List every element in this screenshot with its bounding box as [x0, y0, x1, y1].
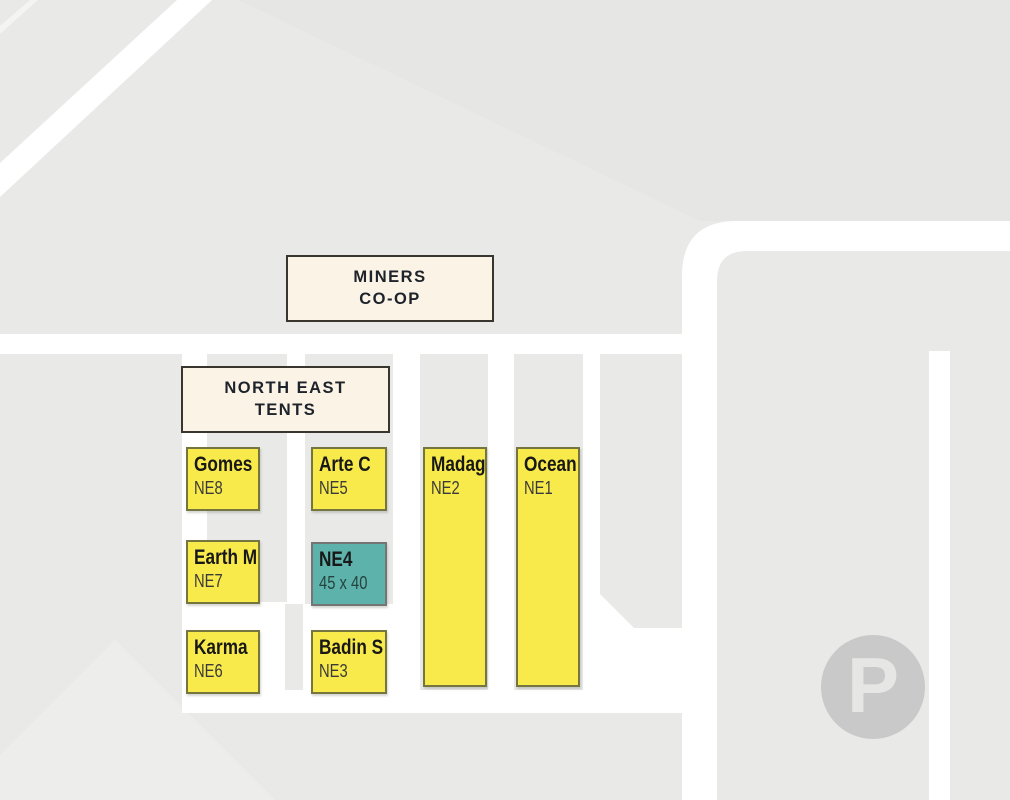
tent-code: NE3 — [319, 660, 385, 682]
area-label-line: NORTH EAST — [183, 378, 388, 400]
area-label-line: TENTS — [183, 400, 388, 422]
tent-name: Earth M — [194, 545, 258, 570]
tent-ne2[interactable]: Madag NE2 — [423, 447, 487, 687]
tent-name: Karma — [194, 635, 258, 660]
parking-letter: P — [847, 646, 899, 724]
tent-name: Gomes — [194, 452, 258, 477]
tent-name: Madag — [431, 452, 485, 477]
tent-ne5[interactable]: Arte C NE5 — [311, 447, 387, 511]
tent-ne3[interactable]: Badin S NE3 — [311, 630, 387, 694]
tent-ne7[interactable]: Earth M NE7 — [186, 540, 260, 604]
tent-code: NE6 — [194, 660, 258, 682]
tent-ne4[interactable]: NE4 45 x 40 — [311, 542, 387, 606]
area-label-north-east-tents: NORTH EAST TENTS — [181, 366, 390, 433]
tent-size: 45 x 40 — [319, 572, 385, 594]
area-label-line: MINERS — [288, 267, 492, 289]
tent-name: Arte C — [319, 452, 385, 477]
area-label-line: CO-OP — [288, 289, 492, 311]
tent-name: Badin S — [319, 635, 385, 660]
tent-code: NE5 — [319, 477, 385, 499]
tent-name: NE4 — [319, 547, 385, 572]
parking-icon: P — [821, 635, 925, 739]
area-label-miners-coop: MINERS CO-OP — [286, 255, 494, 322]
tent-code: NE2 — [431, 477, 485, 499]
tent-code: NE1 — [524, 477, 578, 499]
tent-ne6[interactable]: Karma NE6 — [186, 630, 260, 694]
tent-name: Ocean — [524, 452, 578, 477]
tent-code: NE8 — [194, 477, 258, 499]
tent-ne8[interactable]: Gomes NE8 — [186, 447, 260, 511]
tent-ne1[interactable]: Ocean NE1 — [516, 447, 580, 687]
tent-code: NE7 — [194, 570, 258, 592]
vendor-map: MINERS CO-OP NORTH EAST TENTS Gomes NE8 … — [0, 0, 1010, 800]
